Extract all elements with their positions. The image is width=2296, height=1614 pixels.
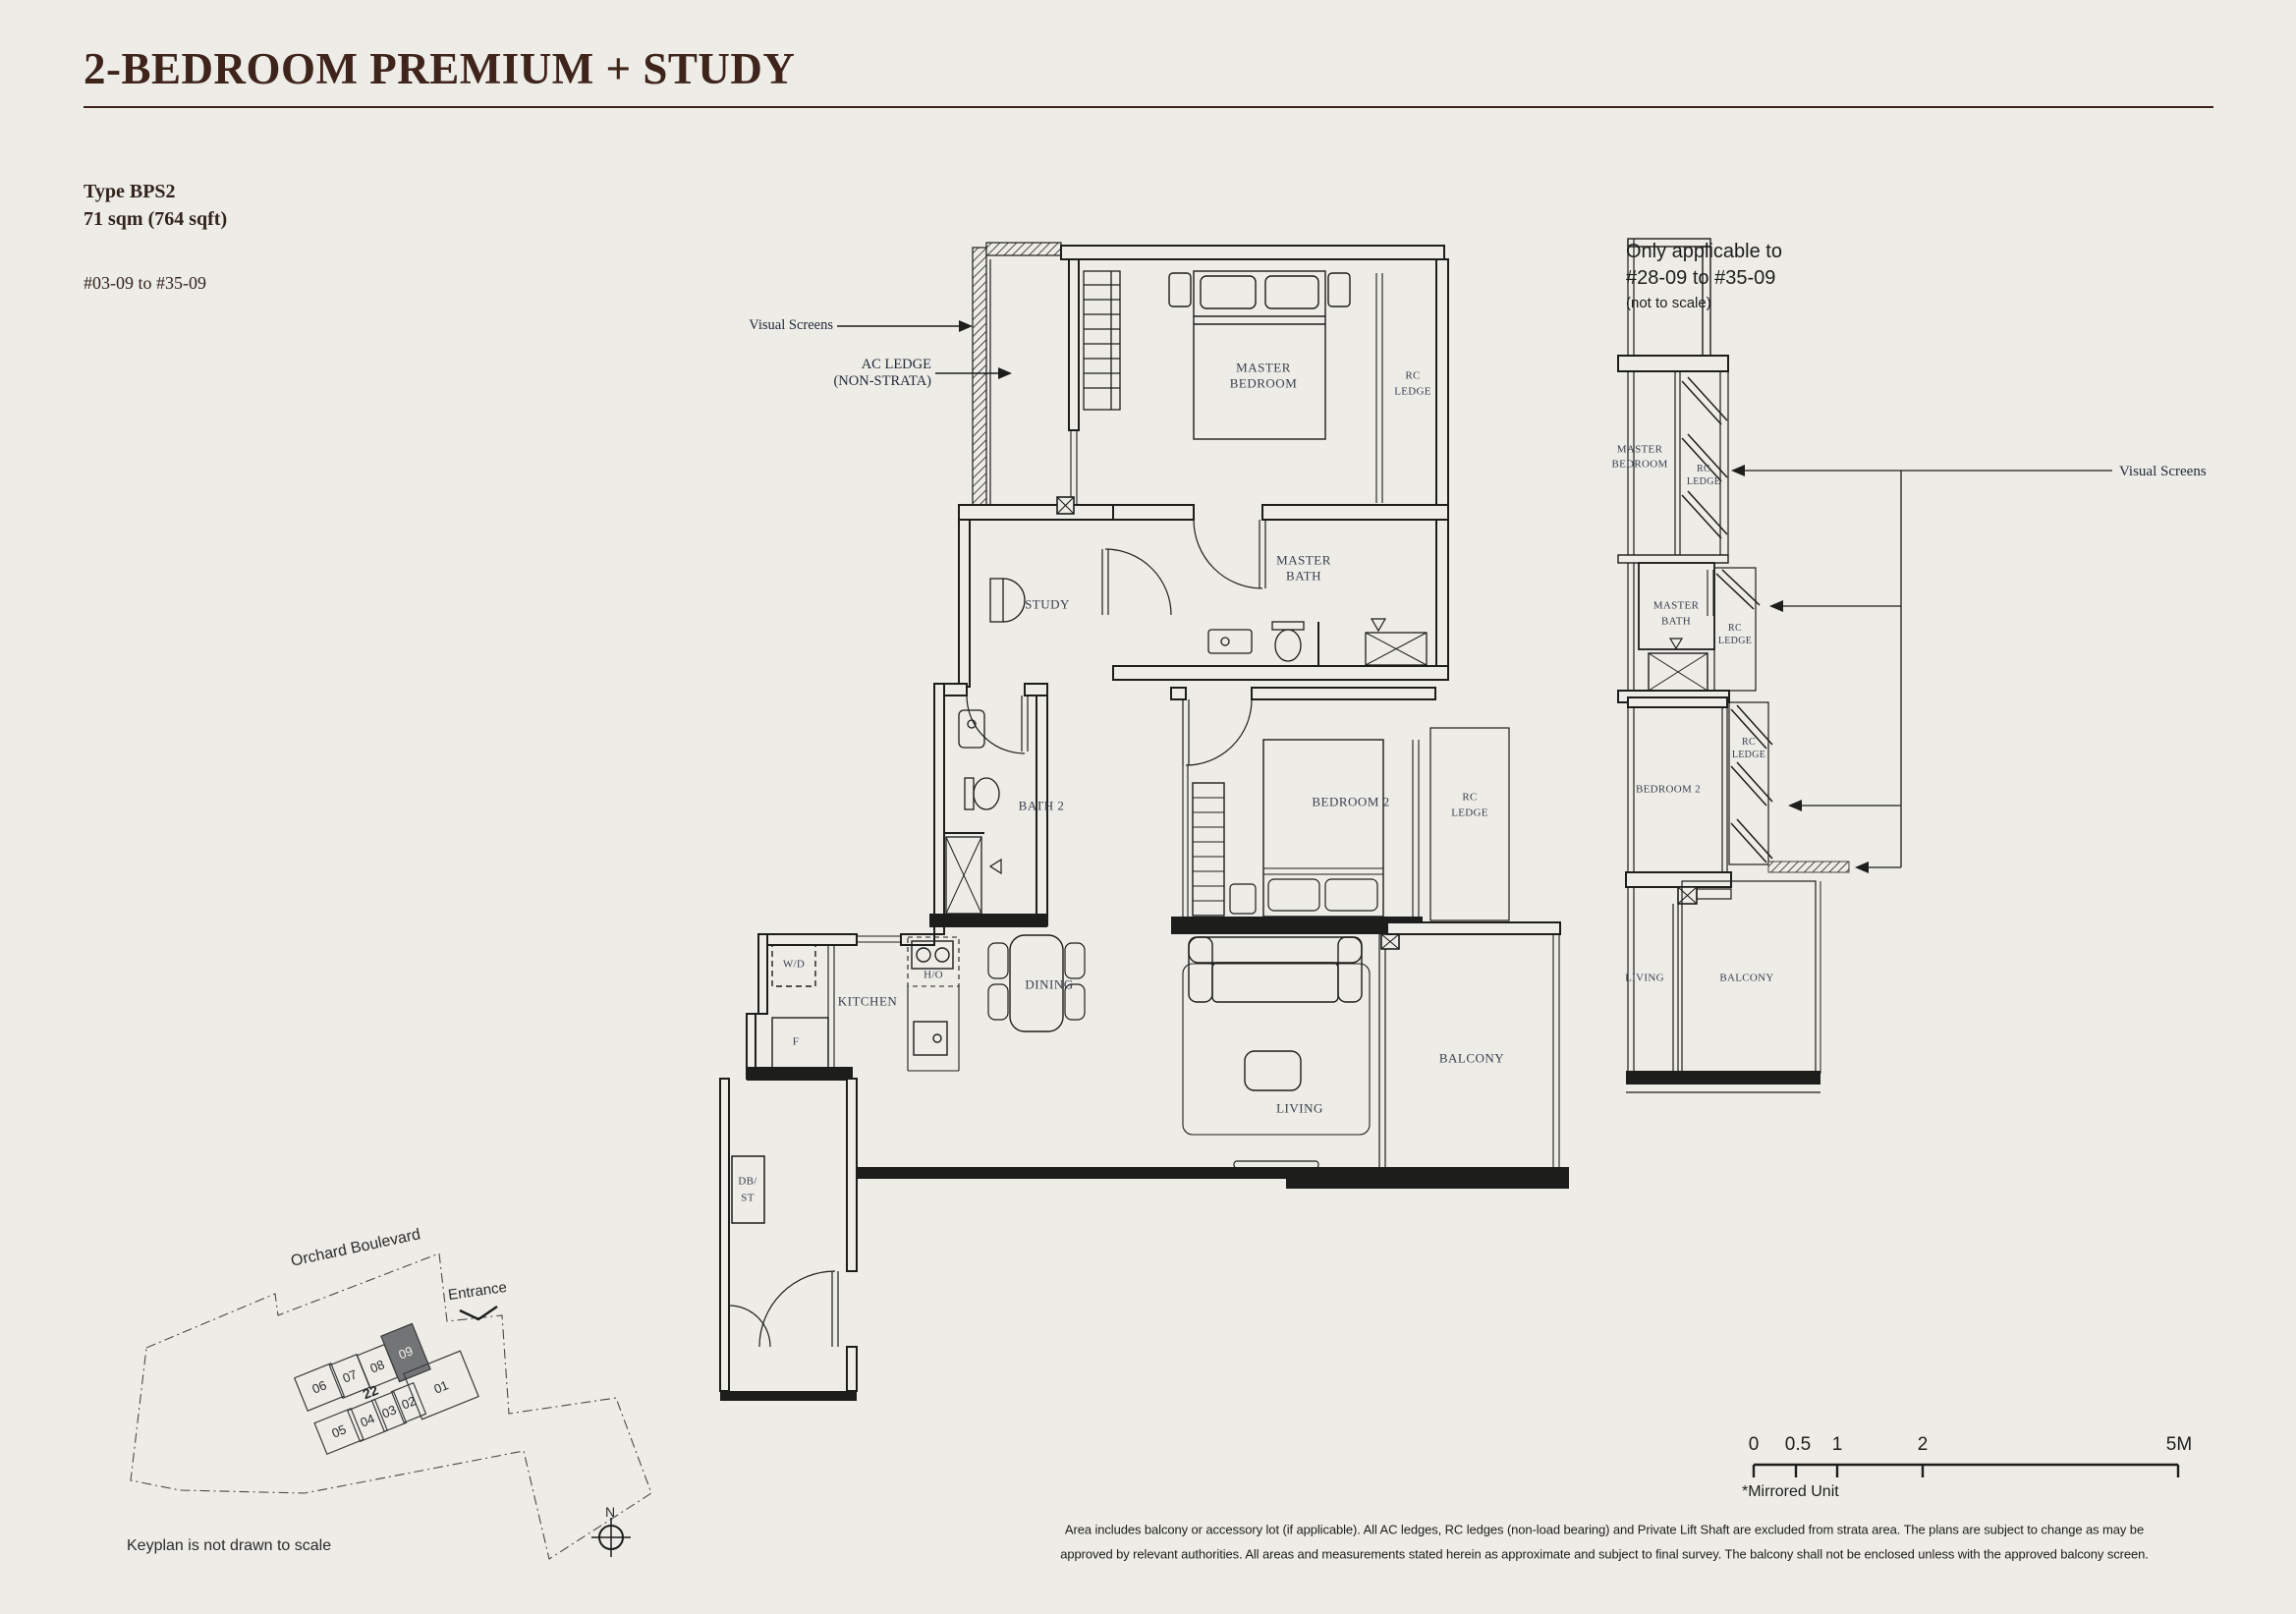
side-label-balcony: BALCONY: [1719, 974, 1773, 984]
visual-screens-callout: Visual Screens: [749, 318, 833, 334]
master-wardrobe: [1084, 271, 1120, 410]
room-label-bath: BATH: [1286, 570, 1321, 583]
visual-screens-leaders: [1731, 465, 2112, 873]
sofa-arm: [1189, 937, 1212, 1002]
coffee-table: [1245, 1051, 1301, 1090]
rc-ledge-label: LEDGE: [1394, 387, 1431, 398]
dining-chair: [988, 943, 1008, 978]
rc-ledge-label: LEDGE: [1732, 751, 1765, 760]
rc-ledge-label: RC: [1697, 465, 1710, 474]
hob-oven-label: H/O: [924, 971, 943, 981]
rc-ledge-label: RC: [1728, 624, 1742, 634]
master-bath-walls: [1113, 505, 1448, 680]
disclaimer-line1: Area includes balcony or accessory lot (…: [1065, 1523, 2144, 1537]
disclaimer-line2: approved by relevant authorities. All ar…: [1060, 1547, 2149, 1562]
nightstand: [1230, 884, 1256, 914]
toilet-bowl: [1275, 630, 1301, 661]
scale-bar: [1754, 1465, 2178, 1477]
vanity-sink: [1208, 630, 1252, 653]
balcony-screen-hatch: [1768, 862, 1849, 872]
scale-tick-2: 2: [1918, 1434, 1929, 1456]
room-label-living: LIVING: [1276, 1102, 1323, 1115]
room-label-bath2: BATH 2: [1019, 800, 1065, 812]
rc-ledge-label: LEDGE: [1687, 477, 1720, 487]
rc-ledge-outline: [1430, 728, 1509, 920]
tv-console: [1234, 1161, 1318, 1168]
scale-tick-0: 0: [1749, 1434, 1760, 1456]
bedroom2-furniture: [1193, 740, 1383, 917]
rc-ledge-label: LEDGE: [1718, 637, 1752, 646]
main-floor-plan: [720, 243, 1569, 1401]
side-label-master: MASTER: [1653, 601, 1699, 612]
bedroom2-walls: [1171, 688, 1435, 934]
fridge: [772, 1018, 828, 1069]
bath2-sink: [959, 710, 984, 748]
dining-chair: [1065, 943, 1085, 978]
mirrored-unit-note: *Mirrored Unit: [1742, 1483, 1839, 1501]
north-label: N: [605, 1504, 615, 1520]
scale-tick-1: 1: [1832, 1434, 1843, 1456]
master-bed: [1169, 271, 1350, 439]
dining-chair: [988, 984, 1008, 1020]
dbst-cabinet: [732, 1156, 764, 1223]
rc-ledge-label: RC: [1742, 738, 1756, 748]
room-label-master: MASTER: [1276, 554, 1331, 567]
drain-marker: [1670, 639, 1682, 648]
balcony-walls: [1379, 922, 1560, 1167]
study-desk: [990, 579, 1025, 622]
scale-tick-05: 0.5: [1785, 1434, 1811, 1456]
room-label-bedroom: BEDROOM: [1230, 377, 1298, 390]
wd-label: W/D: [783, 960, 805, 971]
sofa-seat: [1212, 963, 1338, 1002]
side-label-master: MASTER: [1617, 445, 1662, 456]
entry-foyer: [720, 1079, 857, 1401]
room-label-master: MASTER: [1236, 362, 1291, 374]
sofa-back: [1189, 937, 1362, 963]
keyplan-note: Keyplan is not drawn to scale: [127, 1537, 331, 1555]
bath2-fixtures: [944, 710, 1001, 914]
scale-tick-5m: 5M: [2166, 1434, 2192, 1456]
room-label-dining: DINING: [1025, 978, 1073, 991]
master-bath-fixtures: [1208, 619, 1427, 666]
entrance-door: [729, 1271, 838, 1347]
visual-screen-louvres: [1731, 705, 1772, 863]
bedroom2-wardrobe: [1193, 783, 1224, 916]
sofa-arm: [1338, 937, 1362, 1002]
ac-ledge-callout: AC LEDGE: [862, 358, 931, 373]
side-label-living: LIVING: [1625, 974, 1664, 984]
side-label-bath: BATH: [1661, 617, 1691, 628]
master-bath-door: [1194, 520, 1265, 588]
room-label-kitchen: KITCHEN: [838, 995, 898, 1008]
rc-ledge-label: RC: [1462, 793, 1477, 804]
room-label-balcony: BALCONY: [1439, 1052, 1504, 1065]
rc-ledge-label: RC: [1405, 371, 1420, 382]
bath2-toilet-bowl: [974, 778, 999, 809]
visual-screens-callout: Visual Screens: [2119, 464, 2207, 480]
living-furniture: [1183, 937, 1370, 1168]
side-partial-plan: [1618, 239, 2112, 1092]
bedroom2-door: [1183, 699, 1252, 765]
bath2-drain-marker: [990, 860, 1001, 873]
side-label-bedroom2: BEDROOM 2: [1636, 785, 1701, 796]
north-compass: [591, 1518, 631, 1557]
ac-ledge-note: (NON-STRATA): [833, 374, 931, 390]
fridge-label: F: [793, 1037, 799, 1048]
dbst-label: ST: [741, 1194, 754, 1204]
toilet-tank: [1272, 622, 1304, 630]
dbst-label: DB/: [738, 1177, 756, 1188]
side-label-bedroom: BEDROOM: [1611, 460, 1667, 471]
floorplan-brochure-page: 2-BEDROOM PREMIUM + STUDY Type BPS2 71 s…: [0, 0, 2296, 1614]
drain-marker: [1372, 619, 1385, 631]
visual-screen-wall: [973, 248, 986, 505]
kitchen-sink: [914, 1022, 947, 1055]
bath2-toilet-tank: [965, 778, 974, 809]
room-label-study: STUDY: [1025, 598, 1070, 611]
room-label-bedroom2: BEDROOM 2: [1312, 796, 1389, 808]
bed2: [1263, 740, 1383, 917]
rc-ledge-label: LEDGE: [1451, 808, 1488, 819]
corridor-door: [1102, 549, 1171, 615]
visual-screen-wall-top: [986, 243, 1061, 255]
